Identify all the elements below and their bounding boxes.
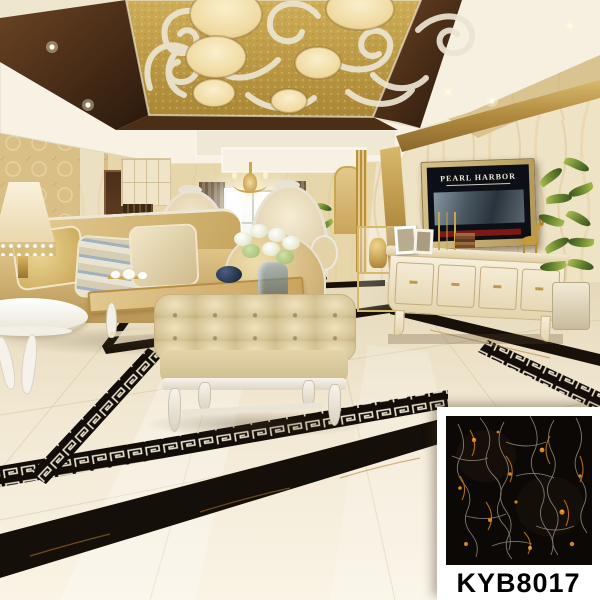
book-stack xyxy=(455,233,475,248)
living-room-tile-showcase-photo: PEARL HARBOR xyxy=(0,0,600,600)
candelabra xyxy=(438,212,456,250)
ottoman-rail xyxy=(162,378,346,390)
plant-leaf xyxy=(567,182,595,199)
blossom xyxy=(282,236,300,250)
drawer-handle xyxy=(451,283,459,286)
round-side-table xyxy=(0,292,100,404)
tile-marble-veins xyxy=(446,416,592,565)
plant-leaf xyxy=(563,155,590,174)
product-swatch-panel: KYB8017 xyxy=(437,407,600,600)
chandelier-candle xyxy=(232,172,237,179)
product-code-label: KYB8017 xyxy=(437,567,600,599)
plant-leaf xyxy=(540,261,567,272)
tea-set xyxy=(108,268,168,288)
drawer-handle xyxy=(493,285,501,288)
blossom-green xyxy=(242,244,260,258)
teapot xyxy=(122,268,136,280)
plant-leaf xyxy=(538,165,564,187)
side-table-leg xyxy=(0,335,19,391)
ottoman-leg xyxy=(328,384,341,426)
cabinet-leg xyxy=(394,310,405,336)
plant-leaf xyxy=(543,235,570,254)
ottoman xyxy=(152,292,358,442)
blossom xyxy=(250,224,268,238)
lamp-base xyxy=(18,256,28,278)
ottoman-leg xyxy=(168,388,181,432)
teacup xyxy=(137,271,148,280)
lamp-crystal-fringe xyxy=(0,242,56,256)
teacup xyxy=(110,270,121,279)
side-table-apron xyxy=(0,326,72,336)
tv-title-underline xyxy=(447,183,510,186)
drawer-handle xyxy=(409,281,417,284)
gold-bust-sculpture xyxy=(369,238,387,268)
plant-leaf xyxy=(568,237,595,248)
photo-frame xyxy=(413,229,433,255)
plant-leaf xyxy=(567,257,594,272)
product-tile-image xyxy=(446,416,592,565)
floor-lamp-left xyxy=(0,182,64,294)
chandelier-candle xyxy=(263,172,268,179)
plant-leaf xyxy=(565,208,592,229)
right-potted-plant xyxy=(538,156,600,342)
plant-pot xyxy=(552,282,590,330)
side-table-leg xyxy=(18,333,40,394)
plant-leaf xyxy=(537,212,565,229)
tv-movie-title: PEARL HARBOR xyxy=(427,171,529,184)
